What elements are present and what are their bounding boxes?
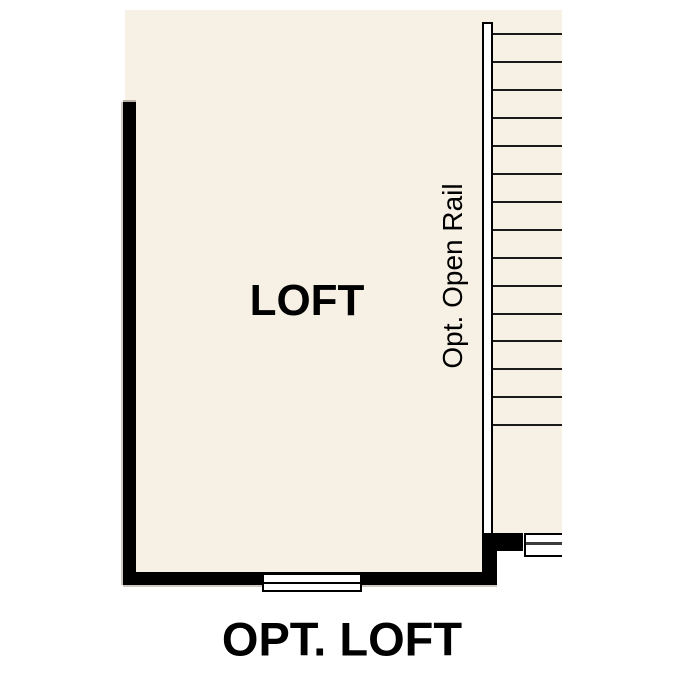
stair-treads [493, 0, 562, 533]
loft-room-floor-lower [125, 533, 482, 572]
stair-tread-line [493, 313, 562, 315]
stair-tread-line [493, 89, 562, 91]
open-rail [482, 22, 493, 533]
landing-divider-line [526, 542, 562, 545]
stair-tread-line [493, 61, 562, 63]
stair-tread-line [493, 173, 562, 175]
stair-tread-line [493, 117, 562, 119]
floor-plan-canvas: LOFT Opt. Open Rail OPT. LOFT [0, 0, 687, 687]
plan-caption: OPT. LOFT [222, 612, 462, 667]
stair-landing [524, 533, 562, 557]
stair-tread-line [493, 368, 562, 370]
stair-tread-line [493, 229, 562, 231]
stair-tread-line [493, 424, 562, 426]
stair-tread-line [493, 145, 562, 147]
stair-tread-line [493, 285, 562, 287]
stair-step-wall-band [482, 533, 523, 551]
stair-tread-line [493, 257, 562, 259]
left-wall [123, 102, 136, 585]
open-rail-label: Opt. Open Rail [437, 183, 469, 368]
stair-tread-line [493, 201, 562, 203]
window-divider-line [264, 582, 360, 584]
stair-tread-line [493, 33, 562, 35]
stair-tread-line [493, 340, 562, 342]
window-symbol [262, 573, 362, 592]
stair-tread-line [493, 396, 562, 398]
stair-step-wall-column [482, 551, 497, 572]
loft-room-label: LOFT [250, 276, 365, 326]
